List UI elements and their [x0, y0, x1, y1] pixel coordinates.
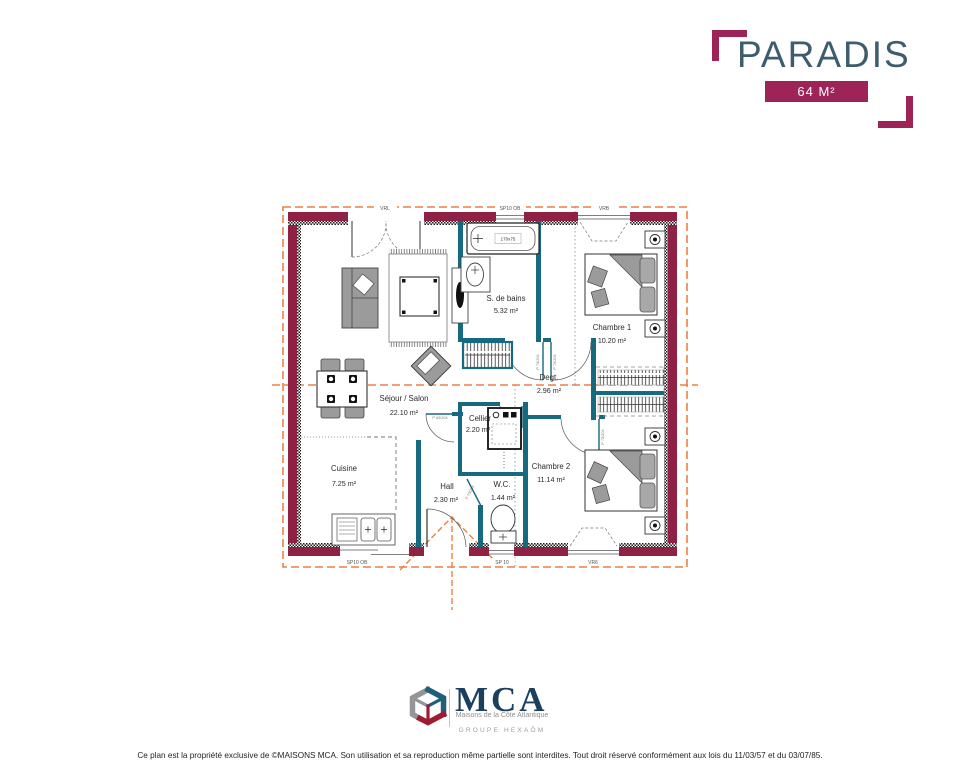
toilet — [491, 505, 516, 543]
area-badge: 64 M² — [765, 81, 868, 102]
window-vrb — [578, 216, 630, 242]
room-label-wc: W.C. — [494, 480, 511, 489]
room-area-cellier: 2.20 m² — [466, 425, 491, 434]
bed-chambre1 — [585, 254, 657, 315]
corner-bracket-bottom-right-icon — [878, 96, 913, 128]
water-heater — [488, 408, 521, 468]
bathtub: 170x75 — [467, 223, 539, 254]
room-label-ch2: Chambre 2 — [532, 462, 571, 471]
bathtub-size-label: 170x75 — [501, 237, 516, 242]
svg-text:P 73/204: P 73/204 — [601, 429, 605, 444]
page-title: PARADIS — [737, 34, 911, 76]
svg-text:P 73/204: P 73/204 — [536, 354, 540, 369]
kitchen-boundary — [301, 437, 396, 512]
room-area-wc: 1.44 m² — [491, 493, 516, 502]
label-sp10ob-bottom: SP10 OB — [347, 560, 369, 566]
linen-closet — [463, 342, 512, 368]
svg-text:P 73/204: P 73/204 — [553, 354, 557, 369]
mca-tagline: Maisons de la Côte Atlantique — [450, 712, 554, 719]
kitchen-sink-unit — [332, 514, 395, 545]
armchair — [411, 346, 451, 386]
entrance-door — [427, 509, 466, 547]
mca-group-name: GROUPE HEXAŌM — [452, 727, 552, 734]
window-sp10 — [489, 551, 514, 555]
mca-cube-logo-icon — [407, 684, 449, 730]
page: PARADIS 64 M² — [0, 0, 960, 768]
bathroom-sink — [461, 257, 490, 292]
copyright-disclaimer: Ce plan est la propriété exclusive de ©M… — [0, 751, 960, 760]
room-area-sdb: 5.32 m² — [494, 306, 519, 315]
room-label-cuisine: Cuisine — [331, 464, 357, 473]
room-label-sdb: S. de bains — [486, 294, 525, 303]
room-area-ch1: 10.20 m² — [598, 336, 627, 345]
floor-plan: 170x75 — [250, 185, 720, 625]
room-label-degt: Degt. — [540, 373, 559, 382]
room-area-cuisine: 7.25 m² — [332, 479, 357, 488]
label-sp10: SP 10 — [495, 560, 509, 566]
window-sp10ob-bottom — [340, 550, 409, 555]
label-vr6: VR6 — [588, 560, 598, 566]
window-vr6 — [568, 528, 619, 554]
coffee-table — [400, 277, 439, 316]
room-area-degt: 2.96 m² — [537, 386, 562, 395]
label-vrb: VRB — [599, 206, 610, 212]
window-sp10ob-top — [496, 216, 524, 220]
room-area-sejour: 22.10 m² — [390, 408, 419, 417]
room-area-ch2: 11.14 m² — [537, 475, 565, 484]
svg-text:P 63/204: P 63/204 — [432, 416, 447, 420]
room-label-hall: Hall — [440, 482, 454, 491]
sofa — [342, 268, 378, 328]
label-vrl: VRL — [380, 206, 390, 212]
room-label-sejour: Séjour / Salon — [380, 394, 429, 403]
dining-set — [317, 359, 367, 418]
room-area-hall: 2.30 m² — [434, 495, 459, 504]
label-sp10ob-top: SP10 OB — [500, 206, 522, 212]
room-label-cellier: Cellier — [469, 414, 491, 423]
logo-divider — [449, 689, 450, 727]
bed-chambre2 — [585, 450, 657, 511]
room-label-ch1: Chambre 1 — [593, 323, 632, 332]
